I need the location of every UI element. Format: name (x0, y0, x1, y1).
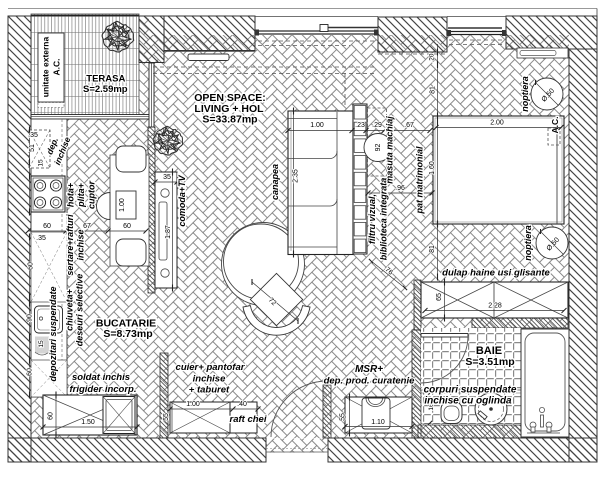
svg-text:.29: .29 (372, 122, 382, 129)
svg-text:.35: .35 (28, 132, 38, 139)
svg-text:chiuveta+: chiuveta+ (65, 288, 75, 331)
svg-text:.67: .67 (404, 122, 414, 129)
svg-text:1.00: 1.00 (119, 198, 126, 212)
svg-text:.35: .35 (36, 235, 46, 242)
svg-text:noptiera: noptiera (520, 76, 530, 112)
svg-text:.23: .23 (355, 122, 365, 129)
svg-text:sertare+rafturi: sertare+rafturi (65, 214, 75, 276)
svg-text:92: 92 (375, 144, 382, 152)
svg-text:81: 81 (429, 245, 436, 253)
svg-text:60: 60 (43, 223, 51, 230)
svg-text:S=2.59mp: S=2.59mp (83, 84, 128, 95)
svg-text:MSR+: MSR+ (355, 364, 383, 375)
svg-text:cuier+ pantofar: cuier+ pantofar (176, 362, 246, 373)
svg-text:masuta machiaj: masuta machiaj (385, 116, 395, 184)
svg-text:corpuri suspendate: corpuri suspendate (424, 385, 517, 396)
svg-text:A.C.: A.C. (550, 117, 560, 134)
svg-text:raft chei: raft chei (230, 414, 267, 425)
svg-text:hota+: hota+ (66, 182, 76, 207)
svg-text:inchise: inchise (193, 374, 226, 385)
svg-text:60: 60 (123, 223, 131, 230)
svg-text:inchise: inchise (76, 229, 86, 260)
svg-text:1.50: 1.50 (81, 419, 95, 426)
svg-text:+ taburet: + taburet (189, 385, 230, 396)
svg-text:.20: .20 (429, 53, 436, 62)
svg-text:S=3.51mp: S=3.51mp (465, 356, 514, 368)
svg-text:60: 60 (27, 368, 34, 376)
svg-text:1.87: 1.87 (165, 225, 172, 239)
svg-text:55: 55 (340, 413, 347, 421)
svg-text:2.35: 2.35 (293, 169, 300, 183)
svg-text:51: 51 (29, 144, 36, 152)
svg-text:.40: .40 (237, 401, 247, 408)
svg-text:filtru vizual,: filtru vizual, (367, 194, 377, 244)
svg-text:65: 65 (436, 293, 443, 301)
svg-text:noptiera: noptiera (523, 225, 533, 261)
svg-text:.96: .96 (395, 185, 405, 192)
svg-text:S=33.87mp: S=33.87mp (202, 114, 257, 126)
svg-text:81: 81 (430, 86, 437, 94)
svg-text:35: 35 (163, 174, 171, 181)
svg-text:1.60: 1.60 (429, 161, 436, 175)
svg-text:TERASA: TERASA (86, 74, 125, 85)
svg-text:S=8.73mp: S=8.73mp (103, 328, 152, 340)
svg-text:2.00: 2.00 (490, 120, 504, 127)
svg-text:60: 60 (28, 262, 35, 270)
svg-text:60: 60 (48, 412, 55, 420)
svg-text:biblioteca integrata: biblioteca integrata (379, 178, 389, 261)
svg-text:15: 15 (38, 159, 45, 167)
svg-text:comoda+TV: comoda+TV (177, 174, 187, 226)
svg-text:1.00: 1.00 (310, 122, 324, 129)
svg-text:dulap haine usi glisante: dulap haine usi glisante (442, 268, 550, 279)
svg-text:67: 67 (83, 223, 91, 230)
svg-text:pat matrimonial: pat matrimonial (415, 146, 425, 215)
svg-text:15: 15 (38, 340, 45, 348)
svg-text:cuptor: cuptor (87, 181, 97, 209)
svg-text:1.10: 1.10 (371, 419, 385, 426)
svg-text:90: 90 (27, 314, 34, 322)
svg-text:depozitari suspendate: depozitari suspendate (48, 286, 58, 381)
svg-text:1.00: 1.00 (186, 401, 200, 408)
svg-text:plita+: plita+ (76, 182, 86, 208)
svg-text:canapea: canapea (270, 164, 280, 200)
svg-text:unitate externa: unitate externa (41, 36, 51, 97)
svg-text:deseuri selective: deseuri selective (75, 274, 85, 347)
svg-text:frigider incorp.: frigider incorp. (69, 384, 136, 395)
svg-text:55: 55 (163, 413, 170, 421)
svg-text:2.28: 2.28 (488, 303, 502, 310)
svg-text:dep. prod. curatenie: dep. prod. curatenie (324, 376, 416, 387)
svg-text:A.C.: A.C. (52, 59, 62, 76)
svg-text:soldat inchis: soldat inchis (72, 372, 130, 383)
svg-text:inchise cu oglinda: inchise cu oglinda (424, 396, 512, 407)
